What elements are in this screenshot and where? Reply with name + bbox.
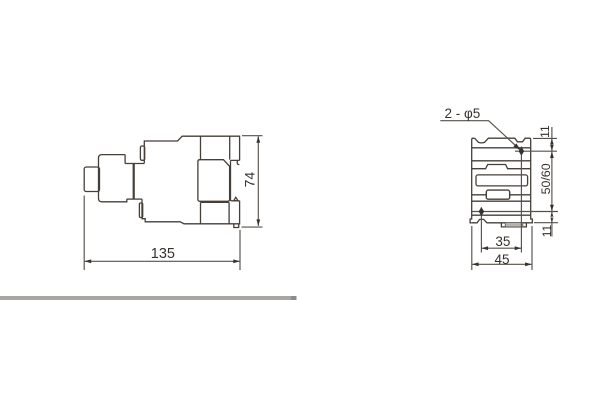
svg-text:50/60: 50/60 — [539, 163, 553, 194]
svg-text:2 - φ5: 2 - φ5 — [445, 106, 481, 121]
svg-text:35: 35 — [495, 234, 510, 249]
svg-text:45: 45 — [494, 252, 509, 267]
svg-text:74: 74 — [241, 172, 257, 188]
svg-text:11: 11 — [538, 125, 552, 138]
svg-text:135: 135 — [151, 246, 175, 262]
svg-text:11: 11 — [540, 224, 554, 237]
